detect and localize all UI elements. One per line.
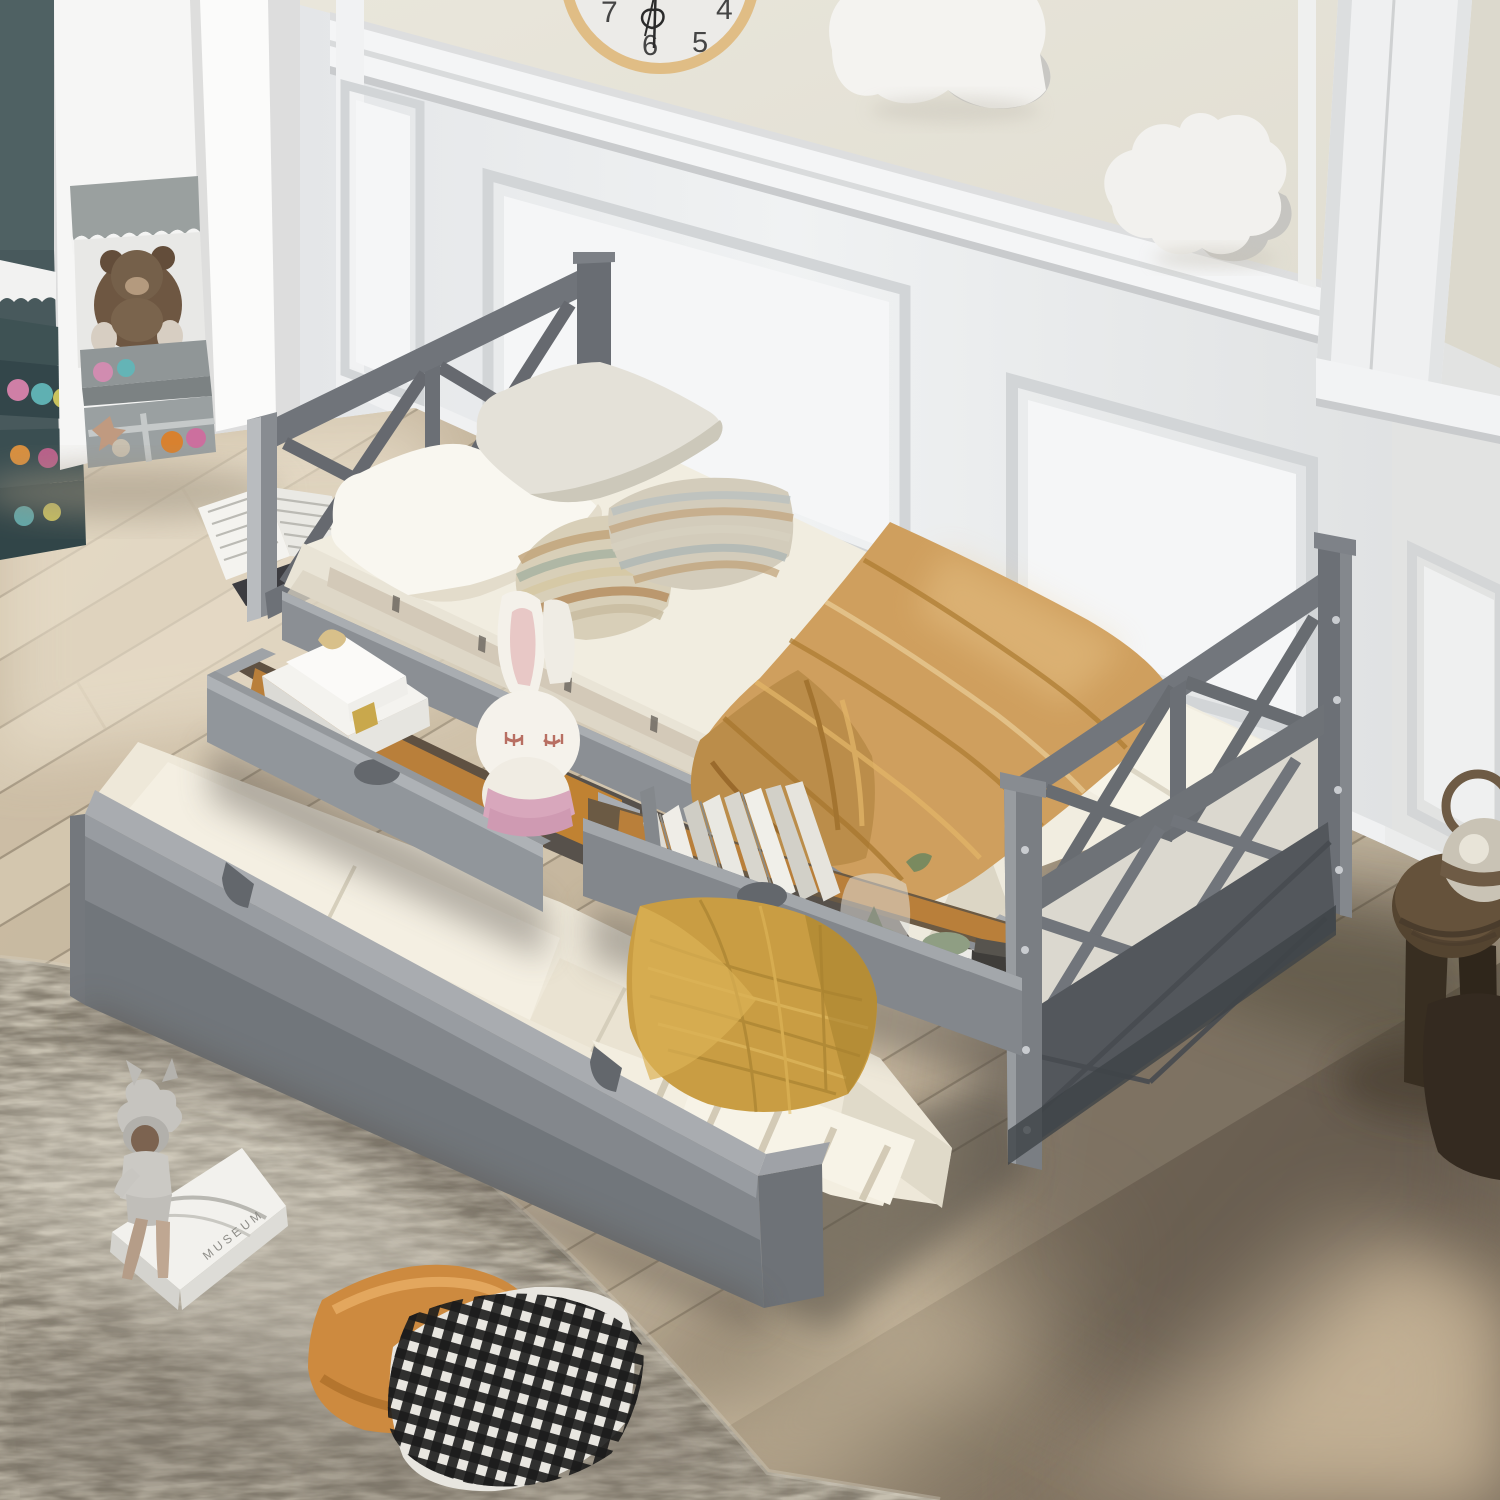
svg-text:4: 4 [716,0,733,26]
svg-text:5: 5 [692,27,708,59]
svg-text:7: 7 [601,0,618,29]
